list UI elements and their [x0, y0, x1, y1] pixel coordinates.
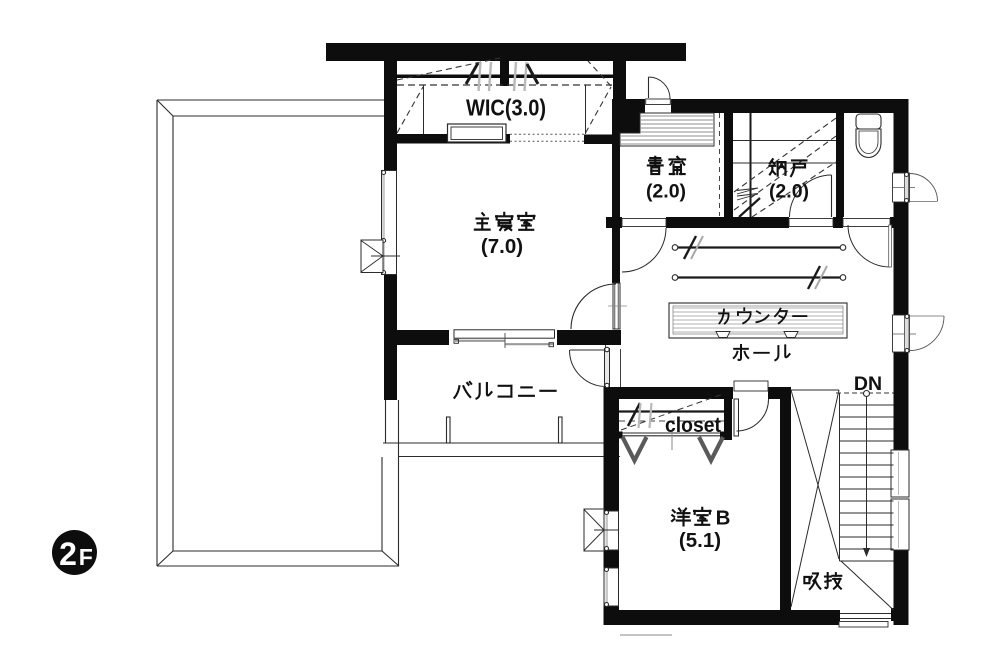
svg-text:2: 2 [59, 536, 77, 572]
svg-text:closet: closet [665, 414, 721, 437]
svg-text:F: F [79, 544, 93, 570]
svg-text:(2.0): (2.0) [646, 181, 686, 203]
svg-text:DN: DN [854, 373, 882, 395]
svg-text:(5.1): (5.1) [679, 529, 721, 552]
svg-text:(7.0): (7.0) [481, 235, 523, 258]
svg-text:(2.0): (2.0) [769, 181, 809, 203]
svg-text:B: B [716, 507, 731, 530]
svg-text:WIC(3.0): WIC(3.0) [466, 95, 546, 121]
